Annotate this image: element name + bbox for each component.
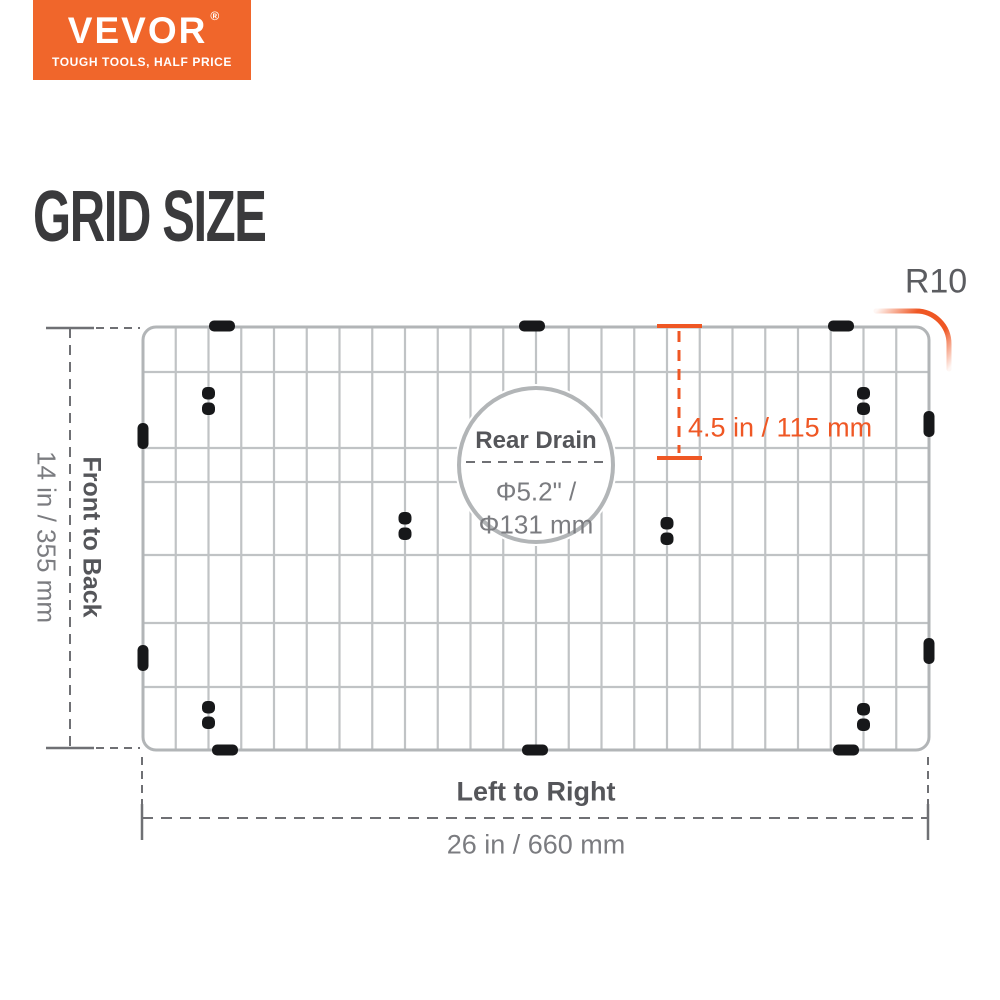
rubber-clip-top	[209, 321, 235, 332]
drain-title: Rear Drain	[475, 427, 596, 455]
front-to-back-label: Front to Back	[77, 456, 106, 617]
corner-radius-arc	[876, 311, 949, 369]
corner-radius-label: R10	[905, 263, 967, 302]
rubber-clip-top	[828, 321, 854, 332]
page: VEVOR® TOUGH TOOLS, HALF PRICE GRID SIZE…	[0, 0, 1000, 1000]
front-to-back-value: 14 in / 355 mm	[31, 451, 62, 623]
rubber-clip-bottom	[212, 745, 238, 756]
rubber-clip-bottom	[522, 745, 548, 756]
left-to-right-label: Left to Right	[457, 777, 616, 808]
rubber-foot	[399, 528, 412, 541]
rubber-clip-right	[924, 638, 935, 664]
rubber-foot	[857, 719, 870, 732]
rubber-clip-top	[519, 321, 545, 332]
left-to-right-value: 26 in / 660 mm	[447, 830, 626, 861]
rubber-clip-bottom	[833, 745, 859, 756]
rubber-foot	[661, 533, 674, 546]
rubber-foot	[399, 512, 412, 525]
drain-diameter-inches: Φ5.2" /	[496, 477, 577, 508]
rubber-clip-right	[924, 411, 935, 437]
rubber-foot	[857, 703, 870, 716]
rubber-foot	[857, 387, 870, 400]
rubber-foot	[202, 701, 215, 714]
rubber-foot	[661, 517, 674, 530]
drain-diameter-mm: Φ131 mm	[479, 510, 594, 541]
drain-offset-label: 4.5 in / 115 mm	[688, 413, 872, 444]
rubber-foot	[202, 403, 215, 416]
rubber-foot	[202, 387, 215, 400]
rubber-foot	[202, 717, 215, 730]
rubber-clip-left	[138, 645, 149, 671]
rubber-clip-left	[138, 423, 149, 449]
